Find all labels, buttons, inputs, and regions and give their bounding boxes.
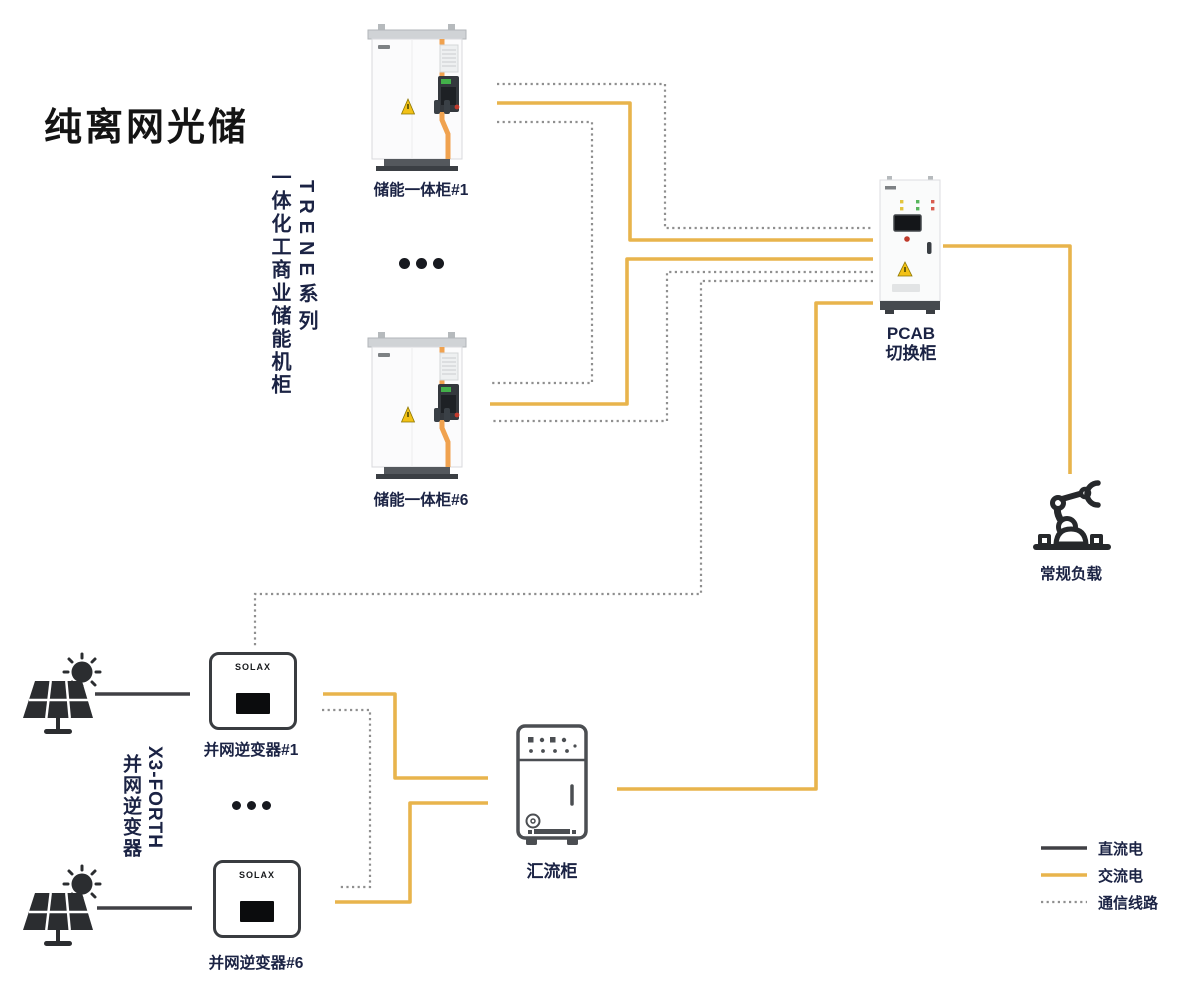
load-label: 常规负载 — [1021, 562, 1121, 584]
page-title: 纯离网光储 — [44, 96, 249, 151]
solar-panel-1-icon — [18, 650, 118, 740]
ess-cabinet-6-label: 储能一体柜#6 — [346, 488, 496, 510]
inverter-brand-logo: SOLAX — [212, 662, 294, 672]
legend-item-ac: 交流电 — [1040, 865, 1158, 885]
inverter-screen — [240, 901, 274, 922]
combiner-box-icon — [512, 722, 592, 852]
wire-ac-combiner-pcab — [617, 303, 873, 789]
inverter-6-icon: SOLAX — [213, 860, 301, 938]
legend-dc-label: 直流电 — [1098, 838, 1143, 859]
legend: 直流电 交流电 通信线路 — [1040, 838, 1158, 912]
ess-ellipsis — [399, 258, 444, 269]
wire-ac-ess1-pcab — [497, 103, 873, 240]
wire-ac-inv1-combiner — [323, 694, 488, 778]
wire-comm-ess1-ess6 — [492, 122, 592, 383]
pcab-label: PCAB 切换柜 — [861, 324, 961, 364]
pv-group-name: 并网逆变器 — [117, 754, 144, 859]
wire-ac-pcab-load — [943, 246, 1070, 474]
diagram-canvas: 纯离网光储 一体化工商业储能机柜 TRENE系列 储能一体柜#1 — [0, 0, 1200, 1000]
inverter-screen — [236, 693, 270, 714]
inverter-brand-logo: SOLAX — [216, 870, 298, 880]
robot-arm-icon — [1026, 478, 1118, 560]
inverter-ellipsis — [232, 801, 271, 810]
pv-group-model: X3-FORTH — [143, 746, 165, 849]
legend-item-comm: 通信线路 — [1040, 892, 1158, 912]
combiner-label: 汇流柜 — [502, 857, 602, 882]
inverter-6-label: 并网逆变器#6 — [181, 951, 331, 973]
solar-panel-2-icon — [18, 862, 118, 952]
ess-cabinet-6-icon — [364, 332, 470, 482]
ess-cabinet-1-label: 储能一体柜#1 — [346, 178, 496, 200]
legend-comm-label: 通信线路 — [1098, 892, 1158, 913]
legend-item-dc: 直流电 — [1040, 838, 1158, 858]
wire-comm-pcab-inverters — [255, 281, 873, 648]
pcab-label-line1: PCAB — [861, 324, 961, 344]
inverter-1-icon: SOLAX — [209, 652, 297, 730]
ess-group-name: 一体化工商业储能机柜 — [265, 167, 294, 397]
pcab-label-line2: 切换柜 — [861, 344, 961, 364]
legend-ac-label: 交流电 — [1098, 865, 1143, 886]
legend-dc-swatch — [1040, 845, 1088, 851]
ess-cabinet-1-icon — [364, 24, 470, 174]
inverter-1-label: 并网逆变器#1 — [176, 738, 326, 760]
legend-ac-swatch — [1040, 872, 1088, 878]
pcab-cabinet-icon — [877, 176, 943, 316]
wire-comm-inv1-inv6 — [322, 710, 370, 887]
legend-comm-swatch — [1040, 899, 1088, 905]
ess-group-series: TRENE系列 — [292, 180, 321, 337]
wire-comm-ess1-pcab — [497, 84, 873, 228]
